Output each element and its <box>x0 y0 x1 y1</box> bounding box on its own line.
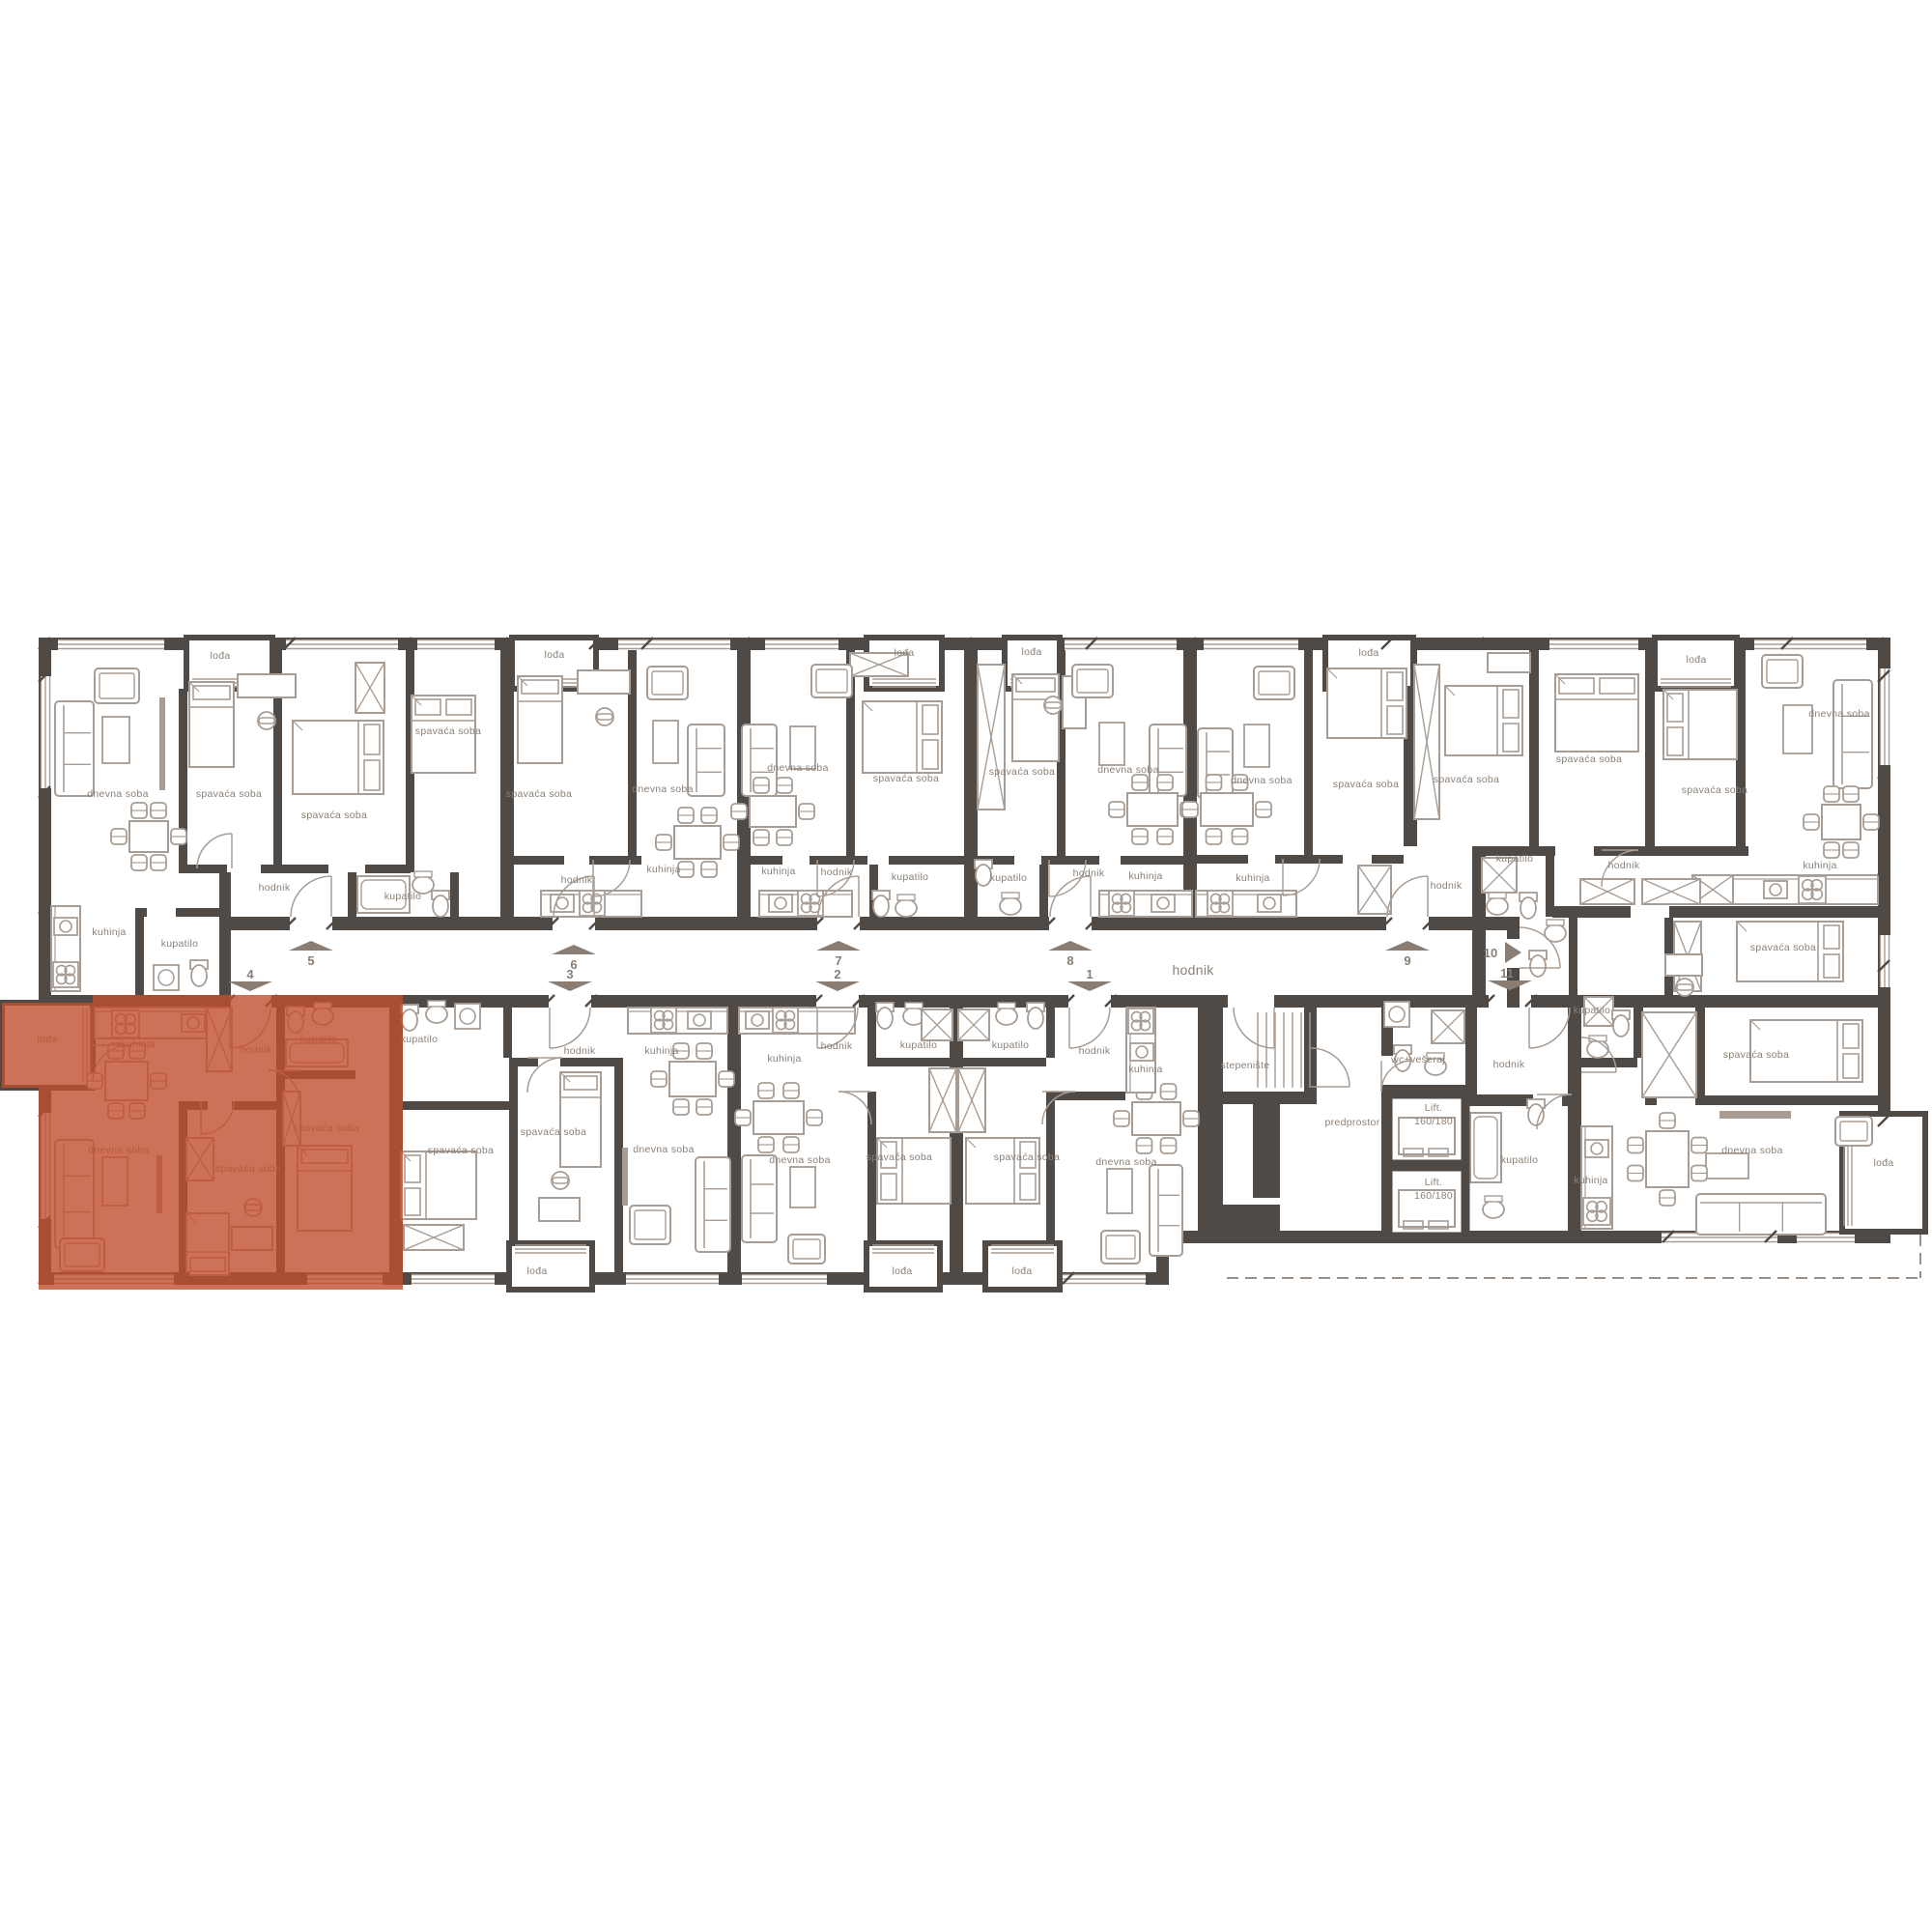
room-label: hodnik <box>1493 1059 1525 1070</box>
unit-marker-5[interactable]: 5 <box>289 941 333 968</box>
room-label: kupatilo <box>1496 853 1534 865</box>
unit-marker-8[interactable]: 8 <box>1048 941 1093 968</box>
room-label: spavaća soba <box>1750 942 1816 953</box>
room-label: spavaća soba <box>415 725 481 737</box>
room-label: spavaća soba <box>867 1151 932 1163</box>
room-label: kuhinja <box>1803 860 1836 871</box>
unit-number: 4 <box>246 967 254 981</box>
room-label: kupatilo <box>992 1039 1030 1051</box>
room-label: lođa <box>1873 1157 1893 1169</box>
unit-marker-1[interactable]: 1 <box>1067 967 1112 991</box>
room-label: hodnik <box>1172 962 1214 978</box>
unit-number: 7 <box>835 953 841 968</box>
entrance-arrow-icon <box>1505 942 1521 963</box>
room-label: spavaća soba <box>196 788 262 800</box>
room-label: lođa <box>1011 1265 1032 1277</box>
room-label: Lift. <box>1425 1102 1442 1114</box>
entrance-arrow-icon <box>1067 981 1112 991</box>
room-label: kuhinja <box>644 1045 678 1057</box>
room-label: kuhinja <box>1574 1175 1607 1186</box>
room-label: hodnik <box>1073 867 1105 879</box>
room-label: lođa <box>210 650 230 662</box>
room-label: 160/180 <box>1414 1190 1453 1202</box>
room-label: spavaća soba <box>506 788 572 800</box>
unit-number: 8 <box>1066 953 1073 968</box>
unit-marker-6[interactable]: 6 <box>552 945 596 972</box>
unit-number: 9 <box>1404 953 1410 968</box>
room-label: kupatilo <box>161 938 199 950</box>
floor-plan-page: lođadnevna sobaspavaća sobaspavaća sobas… <box>0 0 1932 1932</box>
room-label: dnevna soba <box>1808 708 1869 720</box>
room-label: kupatilo <box>892 871 929 883</box>
room-label: stepenište <box>1221 1060 1270 1071</box>
entrance-arrow-icon <box>1385 941 1430 951</box>
room-label: kupatilo <box>900 1039 938 1051</box>
room-label: spavaća soba <box>994 1151 1060 1163</box>
room-label: lođa <box>1358 647 1378 659</box>
room-label: spavaća soba <box>1682 784 1747 796</box>
room-label: spavaća soba <box>1434 774 1499 785</box>
room-label: spavaća soba <box>1556 753 1622 765</box>
room-label: spavaća soba <box>1723 1049 1789 1061</box>
room-label: kupatilo <box>384 891 422 902</box>
room-label: hodnik <box>1079 1045 1111 1057</box>
highlighted-apartment[interactable] <box>2 995 403 1290</box>
entrance-arrow-icon <box>289 941 333 951</box>
room-label: spavaća soba <box>428 1145 494 1156</box>
entrance-arrow-icon <box>228 981 272 991</box>
highlighted-apartment-overlay[interactable] <box>2 995 403 1290</box>
room-label: kupatilo <box>990 872 1028 884</box>
room-label: hodnik <box>821 1040 853 1052</box>
floor-plan-drawing: lođadnevna sobaspavaća sobaspavaća sobas… <box>0 0 1932 1932</box>
room-label: lođa <box>1686 654 1706 666</box>
room-label: kuhinja <box>92 926 126 938</box>
unit-marker-9[interactable]: 9 <box>1385 941 1430 968</box>
room-label: kuhinja <box>1236 872 1269 884</box>
room-label: dnevna soba <box>633 1144 694 1155</box>
room-label: lođa <box>526 1265 547 1277</box>
entrance-arrow-icon <box>1048 941 1093 951</box>
unit-number: 10 <box>1484 946 1497 960</box>
unit-number: 11 <box>1500 966 1514 980</box>
room-label: kupatilo <box>401 1034 439 1045</box>
room-label: hodnik <box>259 882 291 894</box>
room-label: dnevna soba <box>1721 1145 1782 1156</box>
room-label: lođa <box>894 647 914 659</box>
room-label: dnevna soba <box>1231 775 1292 786</box>
room-label: kuhinja <box>646 864 680 875</box>
room-label: kuhinja <box>1128 870 1162 882</box>
room-label: spavaća soba <box>521 1126 586 1138</box>
entrance-arrow-icon <box>552 945 596 954</box>
room-label: dnevna soba <box>632 783 693 795</box>
room-label: kuhinja <box>767 1053 801 1065</box>
room-label: predprostor <box>1325 1117 1380 1128</box>
room-label: dnevna soba <box>1095 1156 1156 1168</box>
room-label: lođa <box>1021 646 1041 658</box>
room-label: hodnik <box>1431 880 1463 892</box>
entrance-arrow-icon <box>1488 980 1532 990</box>
unit-number: 1 <box>1086 967 1093 981</box>
room-label: hodnik <box>1608 860 1640 871</box>
unit-number: 2 <box>834 967 840 981</box>
unit-marker-10[interactable]: 10 <box>1484 942 1521 963</box>
unit-marker-7[interactable]: 7 <box>816 941 861 968</box>
unit-marker-3[interactable]: 3 <box>548 967 592 991</box>
room-label: dnevna soba <box>767 762 828 774</box>
unit-marker-2[interactable]: 2 <box>815 967 860 991</box>
unit-entrance-markers: 5678943211011 <box>228 941 1532 991</box>
room-label: dnevna soba <box>1097 764 1158 776</box>
room-label: kuhinja <box>761 866 795 877</box>
room-label: 160/180 <box>1414 1116 1453 1127</box>
room-label: lođa <box>892 1265 912 1277</box>
room-label: kupatilo <box>1574 1005 1611 1016</box>
unit-marker-4[interactable]: 4 <box>228 967 272 991</box>
room-label: dnevna soba <box>769 1154 830 1166</box>
room-label: spavaća soba <box>989 766 1055 778</box>
room-label: lođa <box>544 649 564 661</box>
unit-number: 5 <box>307 953 314 968</box>
room-label: spavaća soba <box>1333 779 1399 790</box>
entrance-arrow-icon <box>816 941 861 951</box>
room-label: kupatilo <box>1501 1154 1539 1166</box>
room-label: spavaća soba <box>873 773 939 784</box>
room-label: hodnik <box>561 874 593 886</box>
room-label: hodnik <box>821 867 853 878</box>
unit-marker-11[interactable]: 11 <box>1488 966 1532 990</box>
room-label: kuhinja <box>1128 1064 1162 1075</box>
room-label: Lift. <box>1425 1177 1442 1188</box>
room-label: spavaća soba <box>301 810 367 821</box>
entrance-arrow-icon <box>548 981 592 991</box>
unit-number: 3 <box>566 967 573 981</box>
room-label: dnevna soba <box>87 788 148 800</box>
entrance-arrow-icon <box>815 981 860 991</box>
room-label: hodnik <box>564 1045 596 1057</box>
room-label: wc+vešeraj <box>1390 1054 1445 1065</box>
